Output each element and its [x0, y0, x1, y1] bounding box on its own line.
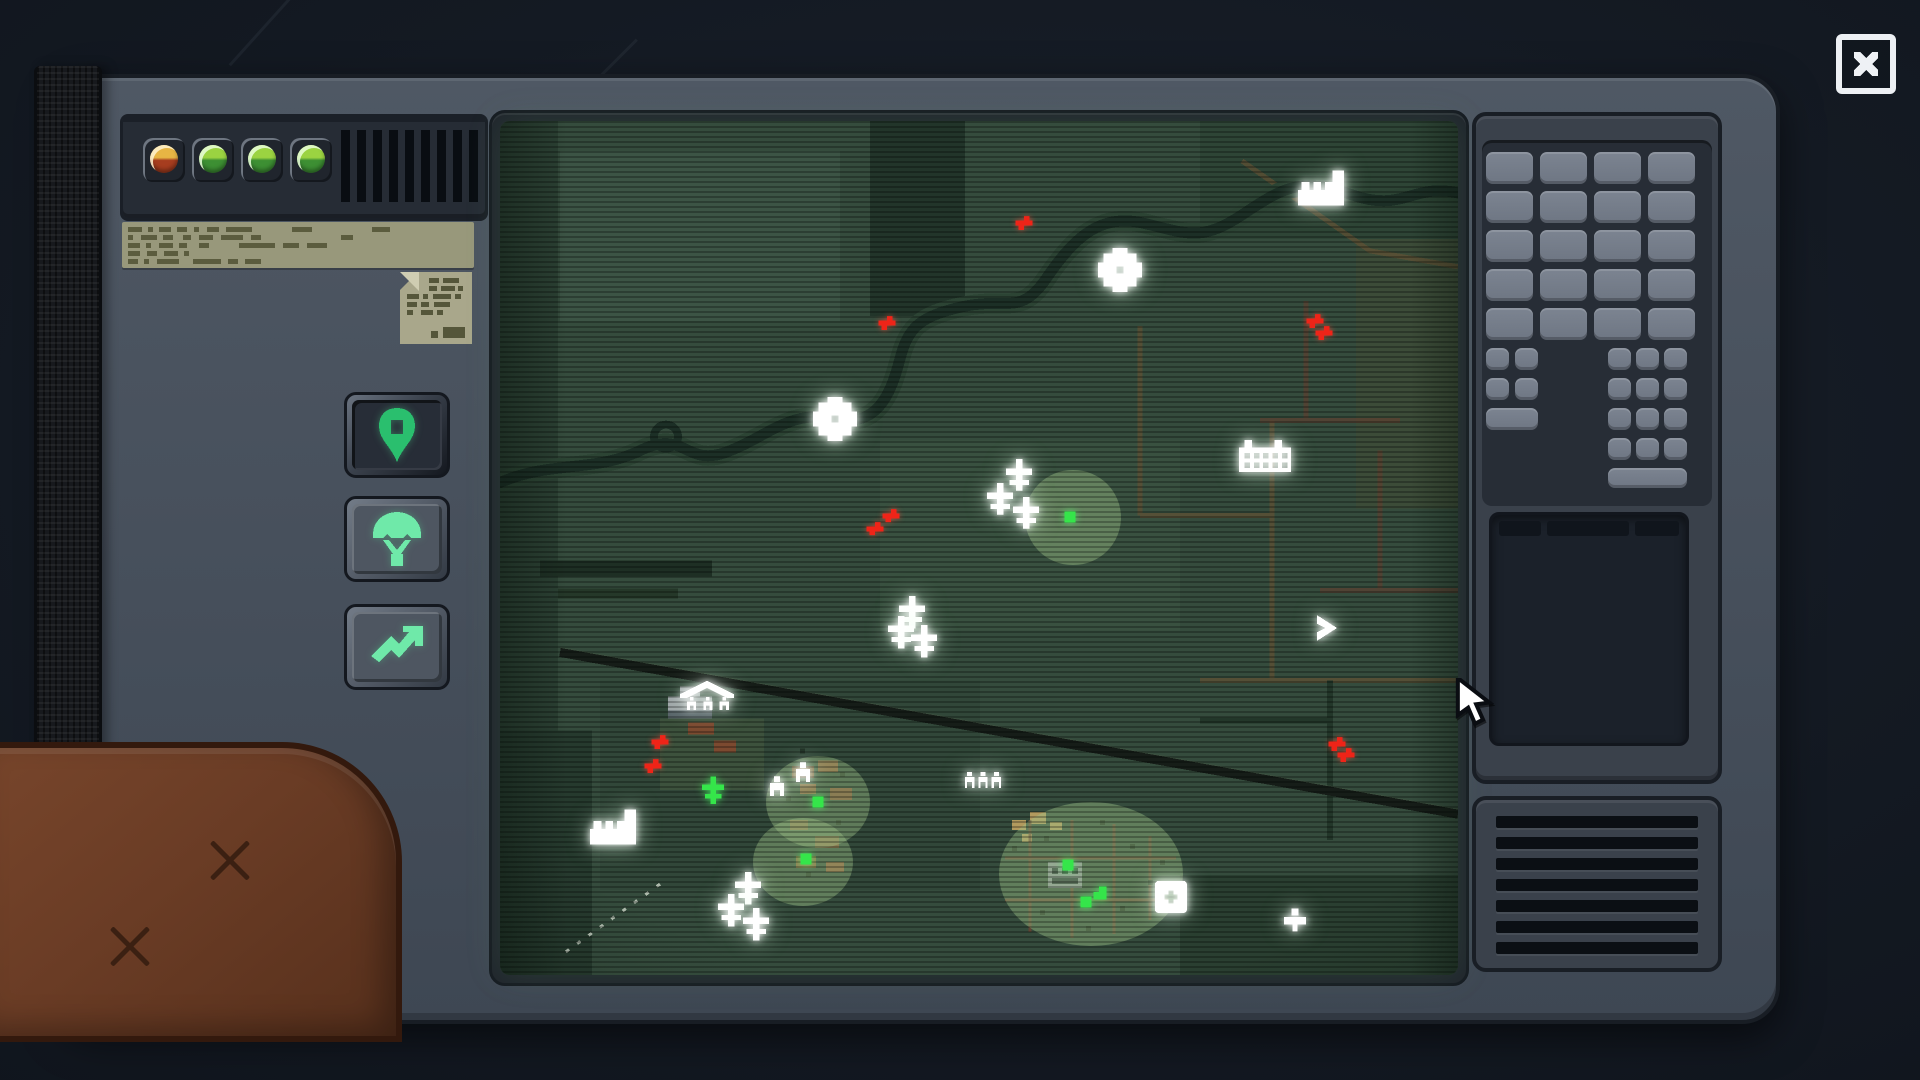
keypad-key[interactable] — [1594, 230, 1641, 262]
side-button-advance[interactable] — [344, 604, 450, 690]
keypad-key[interactable] — [1594, 269, 1641, 301]
status-led-panel — [120, 114, 488, 221]
map-marker-factory-icon[interactable] — [1294, 167, 1348, 209]
map-marker-factory-icon[interactable] — [586, 806, 640, 848]
keypad-key[interactable] — [1486, 230, 1533, 262]
map-marker-crate-icon[interactable] — [1155, 881, 1187, 913]
speaker-slat — [1496, 942, 1698, 954]
status-led-3-green — [241, 138, 283, 182]
map-marker-green-icon[interactable] — [1065, 511, 1076, 522]
close-icon — [1850, 48, 1882, 80]
illegible-text-row — [128, 251, 468, 256]
speaker-slat — [1496, 900, 1698, 912]
keypad-key[interactable] — [1486, 191, 1533, 223]
barcode-bar — [421, 130, 430, 202]
map-marker-tent-icon[interactable] — [678, 681, 736, 715]
keypad-key[interactable] — [1515, 378, 1538, 400]
parachute-icon — [352, 504, 442, 574]
keypad-key[interactable] — [1540, 230, 1587, 262]
barcode-bar — [469, 130, 478, 202]
mini-display-header — [1499, 521, 1679, 536]
map-marker-red-icon[interactable] — [645, 759, 662, 773]
paper-stamp — [443, 327, 465, 338]
illegible-text-row — [405, 278, 467, 283]
speaker-slat — [1496, 837, 1698, 849]
illegible-text-row — [128, 235, 468, 240]
map-marker-plane-icon[interactable] — [911, 625, 937, 658]
illegible-text-row — [405, 286, 467, 291]
map-marker-chevron-icon[interactable] — [1317, 616, 1337, 642]
keypad-key[interactable] — [1608, 378, 1631, 400]
keypad-key[interactable] — [1636, 348, 1659, 370]
keypad-small-right-grid — [1608, 348, 1687, 490]
keypad-key[interactable] — [1486, 269, 1533, 301]
keypad-small-left-grid — [1486, 348, 1538, 430]
map-marker-club-icon[interactable] — [1284, 908, 1306, 931]
map-marker-gear-icon[interactable] — [1098, 248, 1142, 292]
stitch-mark — [104, 920, 156, 972]
keypad-key[interactable] — [1648, 191, 1695, 223]
map-marker-red-icon[interactable] — [1016, 216, 1033, 230]
keypad-key[interactable] — [1636, 408, 1659, 430]
paper-stamp-dot — [431, 331, 438, 338]
map-marker-red-icon[interactable] — [1316, 326, 1333, 340]
barcode-bar — [405, 130, 414, 202]
status-led-2-green — [192, 138, 234, 182]
keypad-key[interactable] — [1648, 308, 1695, 340]
speaker-slat — [1496, 858, 1698, 870]
keypad-key[interactable] — [1608, 438, 1631, 460]
keypad-key[interactable] — [1608, 348, 1631, 370]
speaker-slat — [1496, 816, 1698, 828]
map-marker-soldier-icon[interactable] — [770, 776, 784, 796]
map-marker-gear-icon[interactable] — [813, 397, 857, 441]
map-marker-red-icon[interactable] — [883, 509, 900, 523]
keypad-key[interactable] — [1664, 348, 1687, 370]
map-marker-plane-icon[interactable] — [718, 894, 744, 927]
map-marker-red-icon[interactable] — [879, 316, 896, 330]
keypad-key[interactable] — [1486, 348, 1509, 370]
keypad-key[interactable] — [1486, 378, 1509, 400]
barcode-bar — [373, 130, 382, 202]
keypad-key[interactable] — [1540, 269, 1587, 301]
game-stage — [0, 0, 1920, 1080]
barcode-bar — [389, 130, 398, 202]
map-marker-green-icon[interactable] — [812, 797, 823, 808]
keypad-wide-key[interactable] — [1608, 468, 1687, 488]
tactical-map-screen[interactable] — [500, 121, 1458, 975]
leather-pad — [0, 742, 402, 1042]
map-marker-red-icon[interactable] — [652, 735, 669, 749]
barcode-bar — [357, 130, 366, 202]
barcode-bar — [453, 130, 462, 202]
map-marker-green-icon[interactable] — [801, 854, 812, 865]
paper-note-icon[interactable] — [400, 272, 472, 344]
illegible-text-row — [128, 259, 468, 264]
map-marker-green-icon[interactable] — [1081, 897, 1092, 908]
keypad-key[interactable] — [1515, 348, 1538, 370]
illegible-text-row — [405, 302, 467, 307]
keypad-key[interactable] — [1486, 308, 1533, 340]
display-header-segment — [1635, 521, 1679, 536]
keypad-key[interactable] — [1648, 152, 1695, 184]
map-marker-plane-icon[interactable] — [743, 908, 769, 941]
map-pin-icon — [352, 400, 442, 470]
side-button-paradrop[interactable] — [344, 496, 450, 582]
illegible-text-row — [128, 227, 468, 232]
map-marker-green-angle-icon[interactable] — [1094, 887, 1107, 900]
display-header-segment — [1547, 521, 1629, 536]
keypad-key[interactable] — [1648, 269, 1695, 301]
barcode-bar — [437, 130, 446, 202]
printed-label — [122, 222, 474, 268]
map-marker-plane-icon[interactable] — [987, 482, 1013, 515]
map-marker-soldier-icon[interactable] — [796, 762, 810, 782]
keypad-key[interactable] — [1540, 191, 1587, 223]
keypad-key[interactable] — [1648, 230, 1695, 262]
keypad-key[interactable] — [1636, 378, 1659, 400]
map-marker-barracks-icon[interactable] — [1237, 436, 1293, 473]
keypad-key[interactable] — [1594, 152, 1641, 184]
speaker-slat — [1496, 921, 1698, 933]
display-header-segment — [1499, 521, 1541, 536]
keypad-key[interactable] — [1608, 408, 1631, 430]
close-button[interactable] — [1836, 34, 1896, 94]
trend-up-icon — [352, 612, 442, 682]
scratch-line — [229, 0, 332, 66]
keypad-key[interactable] — [1664, 438, 1687, 460]
map-marker-persons-icon[interactable] — [965, 772, 1001, 788]
status-led-4-green — [290, 138, 332, 182]
illegible-text-row — [405, 294, 467, 299]
keypad-key[interactable] — [1594, 308, 1641, 340]
keypad-panel — [1472, 112, 1722, 784]
barcode — [341, 130, 478, 202]
map-marker-layer — [500, 121, 1458, 975]
status-led-1-amber — [143, 138, 185, 182]
keypad-wide-key[interactable] — [1486, 408, 1538, 430]
illegible-text-row — [405, 310, 467, 315]
keypad-key[interactable] — [1664, 408, 1687, 430]
stitch-mark — [204, 834, 256, 886]
paper-text-rows — [405, 278, 467, 318]
keypad-key[interactable] — [1594, 191, 1641, 223]
keypad-key[interactable] — [1540, 308, 1587, 340]
map-screen-frame — [489, 110, 1469, 986]
keypad-key[interactable] — [1486, 152, 1533, 184]
illegible-text-row — [128, 243, 468, 248]
keypad-key[interactable] — [1636, 438, 1659, 460]
map-marker-green-plane-icon[interactable] — [702, 776, 724, 804]
map-marker-green-icon[interactable] — [1063, 860, 1074, 871]
mini-display — [1489, 512, 1689, 746]
speaker-grille — [1472, 796, 1722, 972]
barcode-bar — [341, 130, 350, 202]
speaker-slat — [1496, 879, 1698, 891]
keypad-key[interactable] — [1540, 152, 1587, 184]
keypad-key[interactable] — [1664, 378, 1687, 400]
map-marker-red-icon[interactable] — [1338, 748, 1355, 762]
side-button-waypoint[interactable] — [344, 392, 450, 478]
map-marker-red-icon[interactable] — [867, 522, 884, 536]
keypad-large-grid — [1486, 152, 1695, 340]
map-marker-plane-icon[interactable] — [1013, 496, 1039, 529]
